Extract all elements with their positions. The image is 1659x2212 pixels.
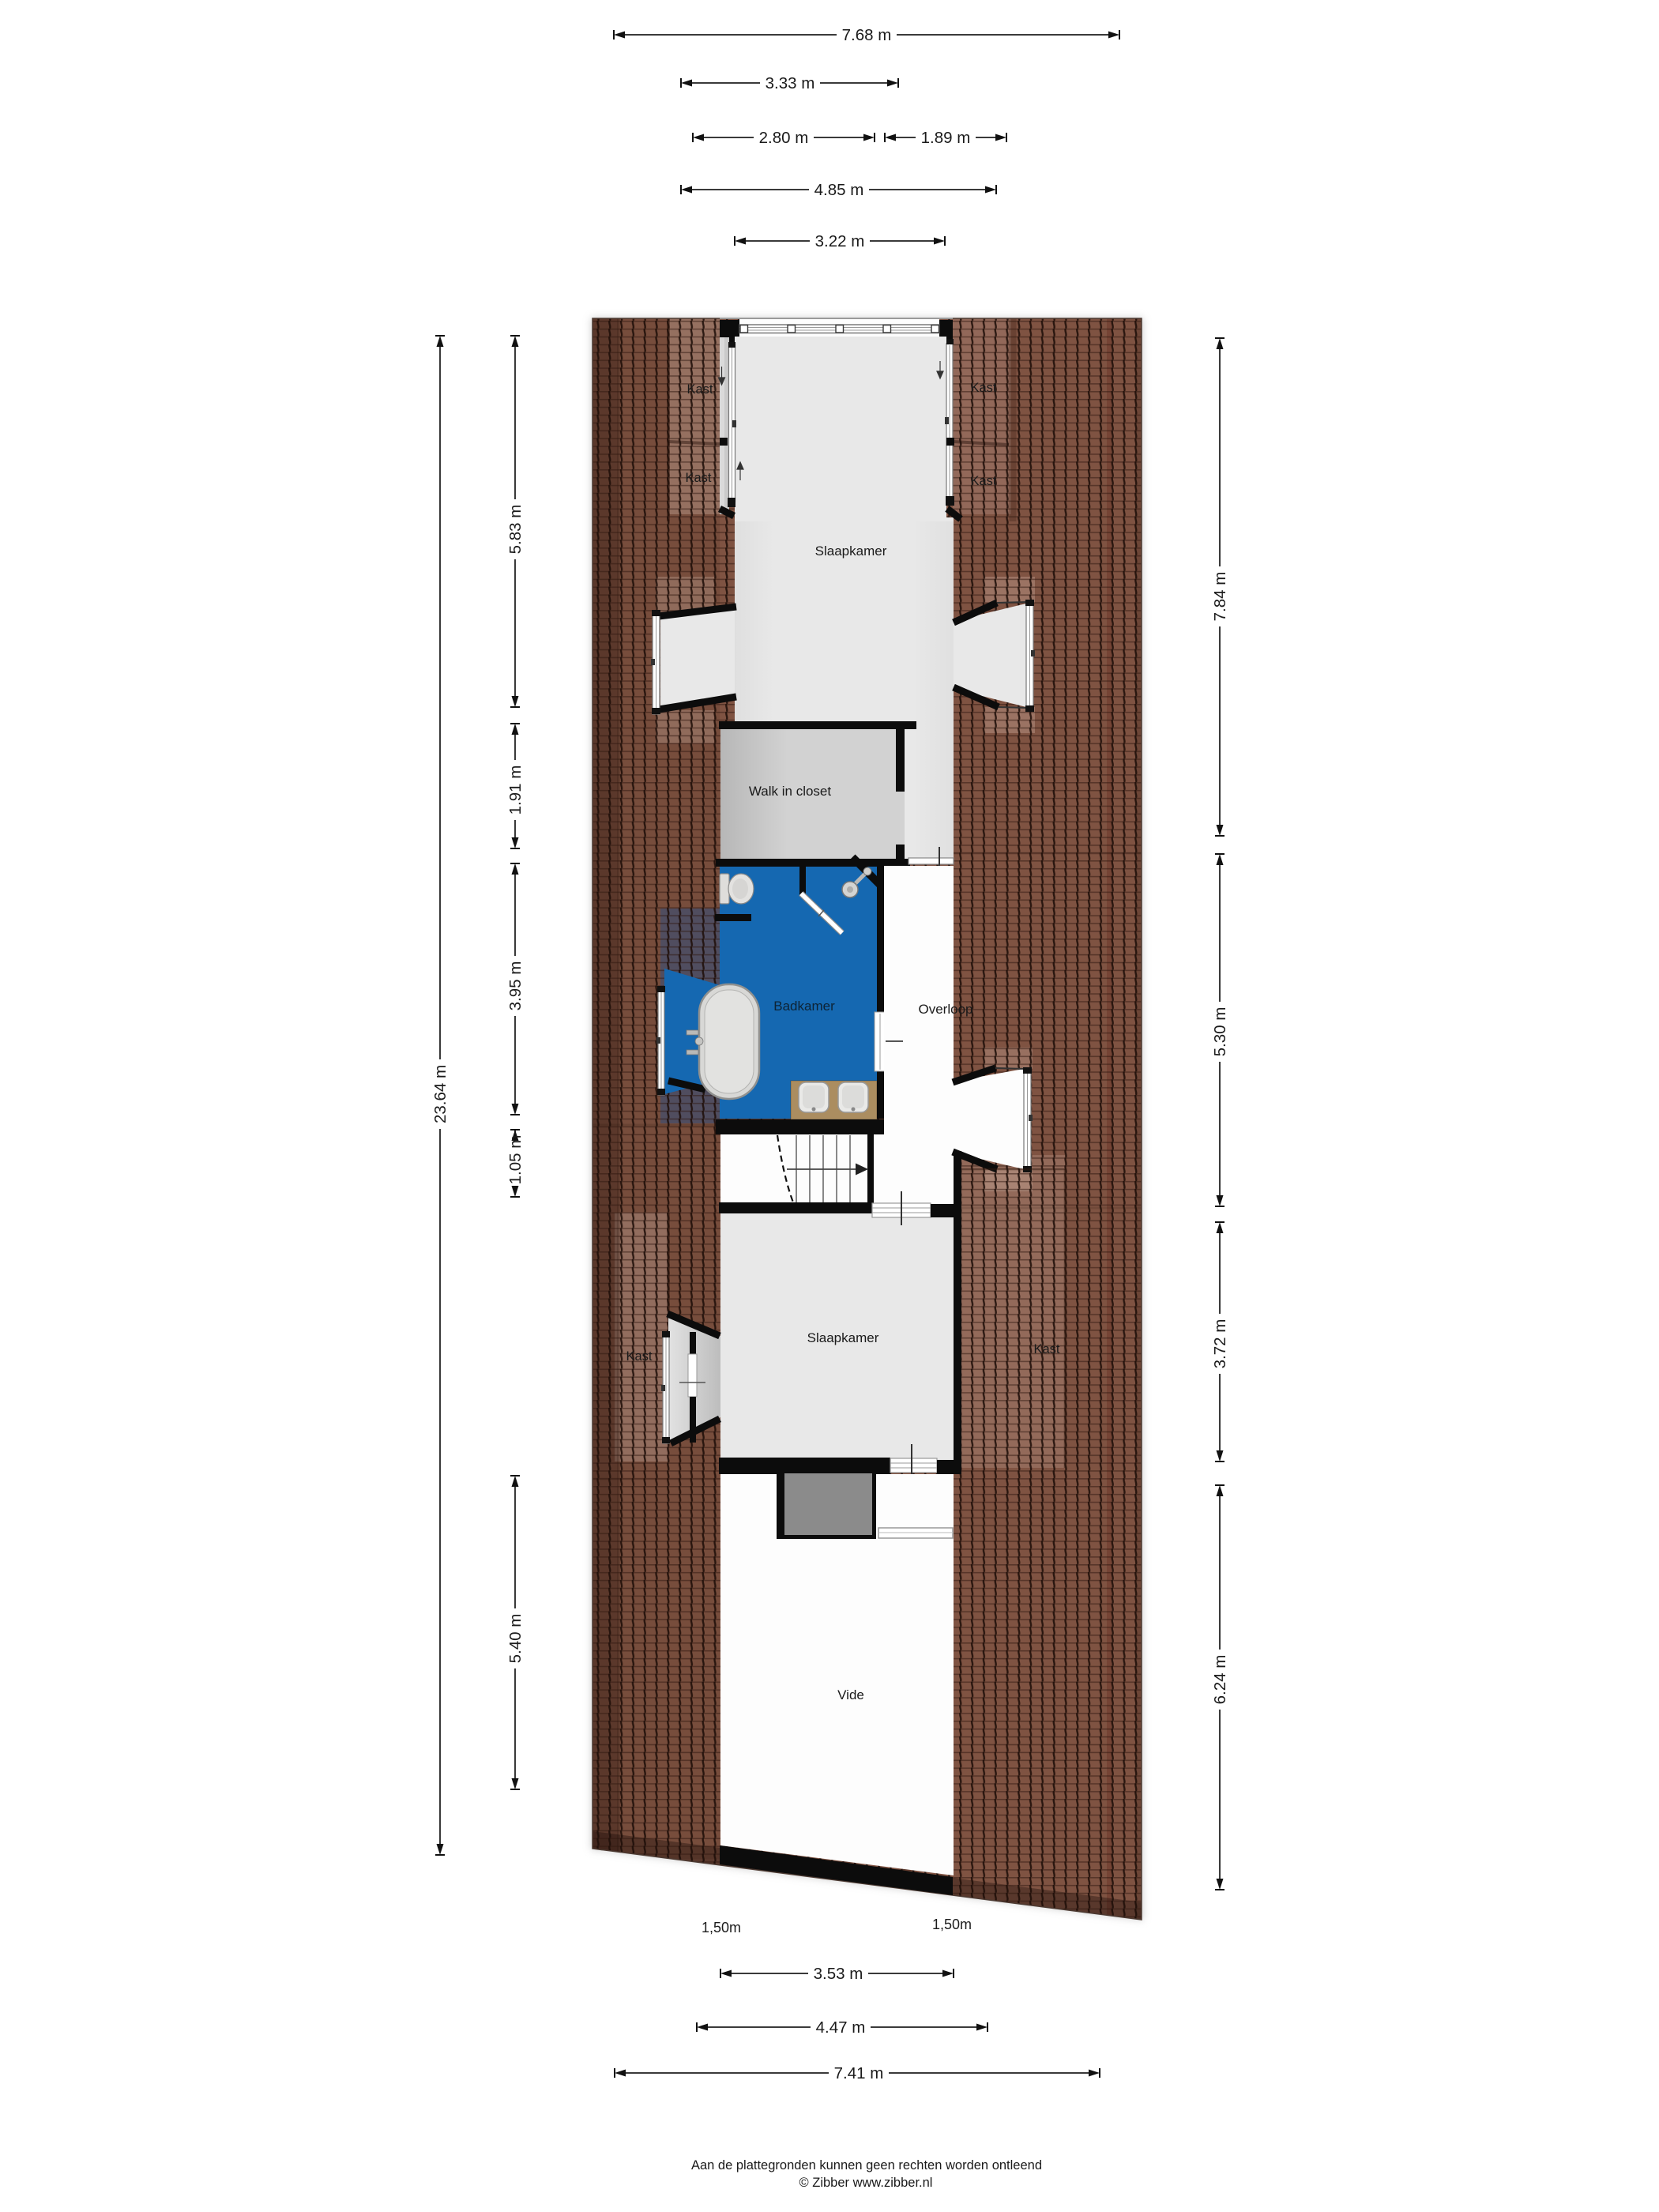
svg-text:1.91 m: 1.91 m xyxy=(506,766,525,815)
svg-text:1.89 m: 1.89 m xyxy=(921,129,971,147)
svg-text:Kast: Kast xyxy=(685,471,711,485)
svg-text:3.22 m: 3.22 m xyxy=(815,232,865,250)
svg-text:5.83 m: 5.83 m xyxy=(506,505,525,555)
svg-text:4.85 m: 4.85 m xyxy=(814,181,864,199)
svg-text:Aan de plattegronden kunnen ge: Aan de plattegronden kunnen geen rechten… xyxy=(691,2158,1042,2172)
svg-text:Slaapkamer: Slaapkamer xyxy=(807,1330,879,1345)
svg-text:23.64 m: 23.64 m xyxy=(431,1065,450,1123)
svg-text:4.47 m: 4.47 m xyxy=(816,2018,866,2037)
svg-text:1.05 m: 1.05 m xyxy=(506,1135,525,1185)
svg-text:Kast: Kast xyxy=(1033,1342,1059,1356)
svg-text:3.72 m: 3.72 m xyxy=(1211,1319,1229,1369)
svg-text:7.41 m: 7.41 m xyxy=(834,2064,884,2082)
svg-text:5.40 m: 5.40 m xyxy=(506,1614,525,1664)
svg-text:Kast: Kast xyxy=(626,1349,652,1364)
svg-text:Kast: Kast xyxy=(687,382,713,397)
svg-text:7.84 m: 7.84 m xyxy=(1211,572,1229,622)
svg-text:Overloop: Overloop xyxy=(919,1002,973,1017)
svg-text:Badkamer: Badkamer xyxy=(773,999,835,1014)
svg-text:1,50m: 1,50m xyxy=(702,1920,741,1935)
svg-text:Vide: Vide xyxy=(837,1687,864,1702)
svg-text:6.24 m: 6.24 m xyxy=(1211,1655,1229,1705)
svg-text:5.30 m: 5.30 m xyxy=(1211,1007,1229,1057)
svg-text:3.33 m: 3.33 m xyxy=(766,74,815,92)
svg-text:1,50m: 1,50m xyxy=(932,1917,972,1932)
svg-text:© Zibber www.zibber.nl: © Zibber www.zibber.nl xyxy=(799,2176,933,2190)
svg-text:Slaapkamer: Slaapkamer xyxy=(815,544,887,559)
svg-text:Kast: Kast xyxy=(970,381,996,395)
svg-text:3.95 m: 3.95 m xyxy=(506,961,525,1011)
svg-text:7.68 m: 7.68 m xyxy=(842,26,892,44)
svg-text:Kast: Kast xyxy=(970,474,996,488)
svg-text:3.53 m: 3.53 m xyxy=(814,1965,863,1983)
svg-text:Walk in closet: Walk in closet xyxy=(749,784,832,799)
svg-text:2.80 m: 2.80 m xyxy=(759,129,809,147)
